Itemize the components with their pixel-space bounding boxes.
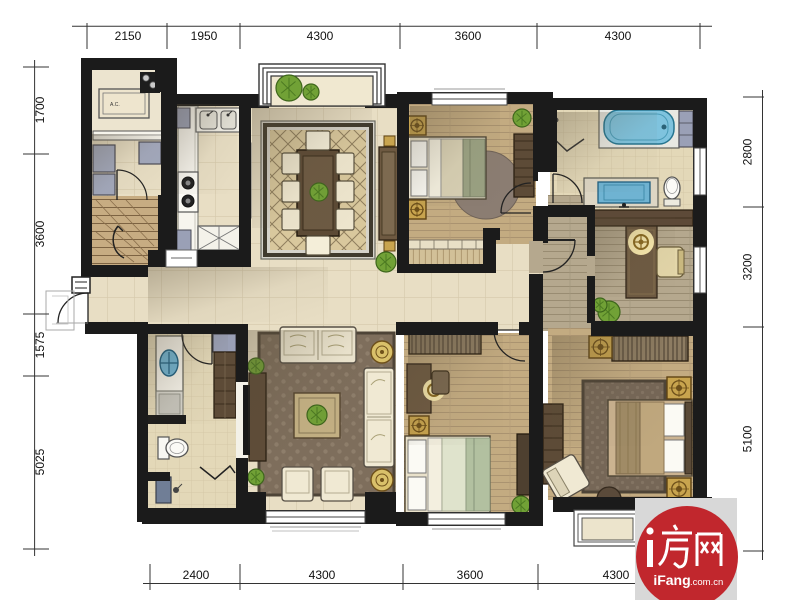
svg-text:3600: 3600 [455, 29, 482, 43]
svg-text:4300: 4300 [309, 568, 336, 582]
svg-text:3600: 3600 [33, 220, 47, 247]
svg-text:4300: 4300 [307, 29, 334, 43]
svg-text:3200: 3200 [741, 253, 755, 280]
svg-text:5100: 5100 [741, 425, 755, 452]
svg-text:2800: 2800 [741, 138, 755, 165]
svg-text:5025: 5025 [33, 448, 47, 475]
svg-text:2400: 2400 [183, 568, 210, 582]
svg-text:4300: 4300 [605, 29, 632, 43]
svg-text:iFang: iFang [653, 572, 690, 588]
svg-text:4300: 4300 [603, 568, 630, 582]
svg-text:1575: 1575 [33, 331, 47, 358]
svg-text:A.C.: A.C. [110, 102, 120, 108]
svg-text:1700: 1700 [33, 96, 47, 123]
svg-text:2150: 2150 [115, 29, 142, 43]
svg-text:1950: 1950 [191, 29, 218, 43]
svg-text:3600: 3600 [457, 568, 484, 582]
svg-text:.com.cn: .com.cn [690, 577, 723, 588]
